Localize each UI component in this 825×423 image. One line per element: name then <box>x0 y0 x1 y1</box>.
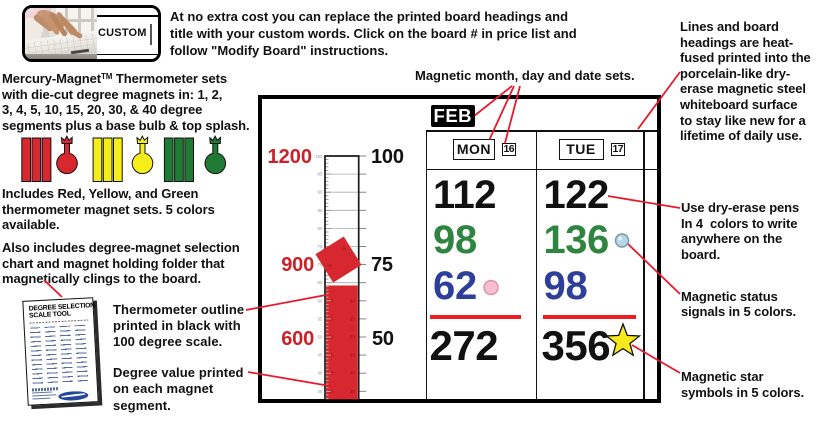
svg-text:50: 50 <box>317 335 323 340</box>
svg-text:75: 75 <box>317 244 323 249</box>
svg-text:55: 55 <box>317 316 323 321</box>
svg-text:100: 100 <box>315 154 323 159</box>
svg-text:50: 50 <box>350 335 356 340</box>
svg-text:40: 40 <box>317 371 323 376</box>
svg-text:45: 45 <box>350 353 356 358</box>
svg-text:60: 60 <box>317 298 323 303</box>
svg-text:90: 90 <box>317 190 323 195</box>
svg-text:35: 35 <box>350 389 356 394</box>
svg-text:40: 40 <box>350 371 356 376</box>
svg-text:45: 45 <box>317 353 323 358</box>
svg-text:85: 85 <box>317 208 323 213</box>
svg-text:55: 55 <box>350 316 356 321</box>
svg-text:65: 65 <box>317 280 323 285</box>
svg-text:60: 60 <box>350 298 356 303</box>
svg-text:95: 95 <box>317 172 323 177</box>
svg-text:80: 80 <box>317 226 323 231</box>
svg-text:35: 35 <box>317 389 323 394</box>
